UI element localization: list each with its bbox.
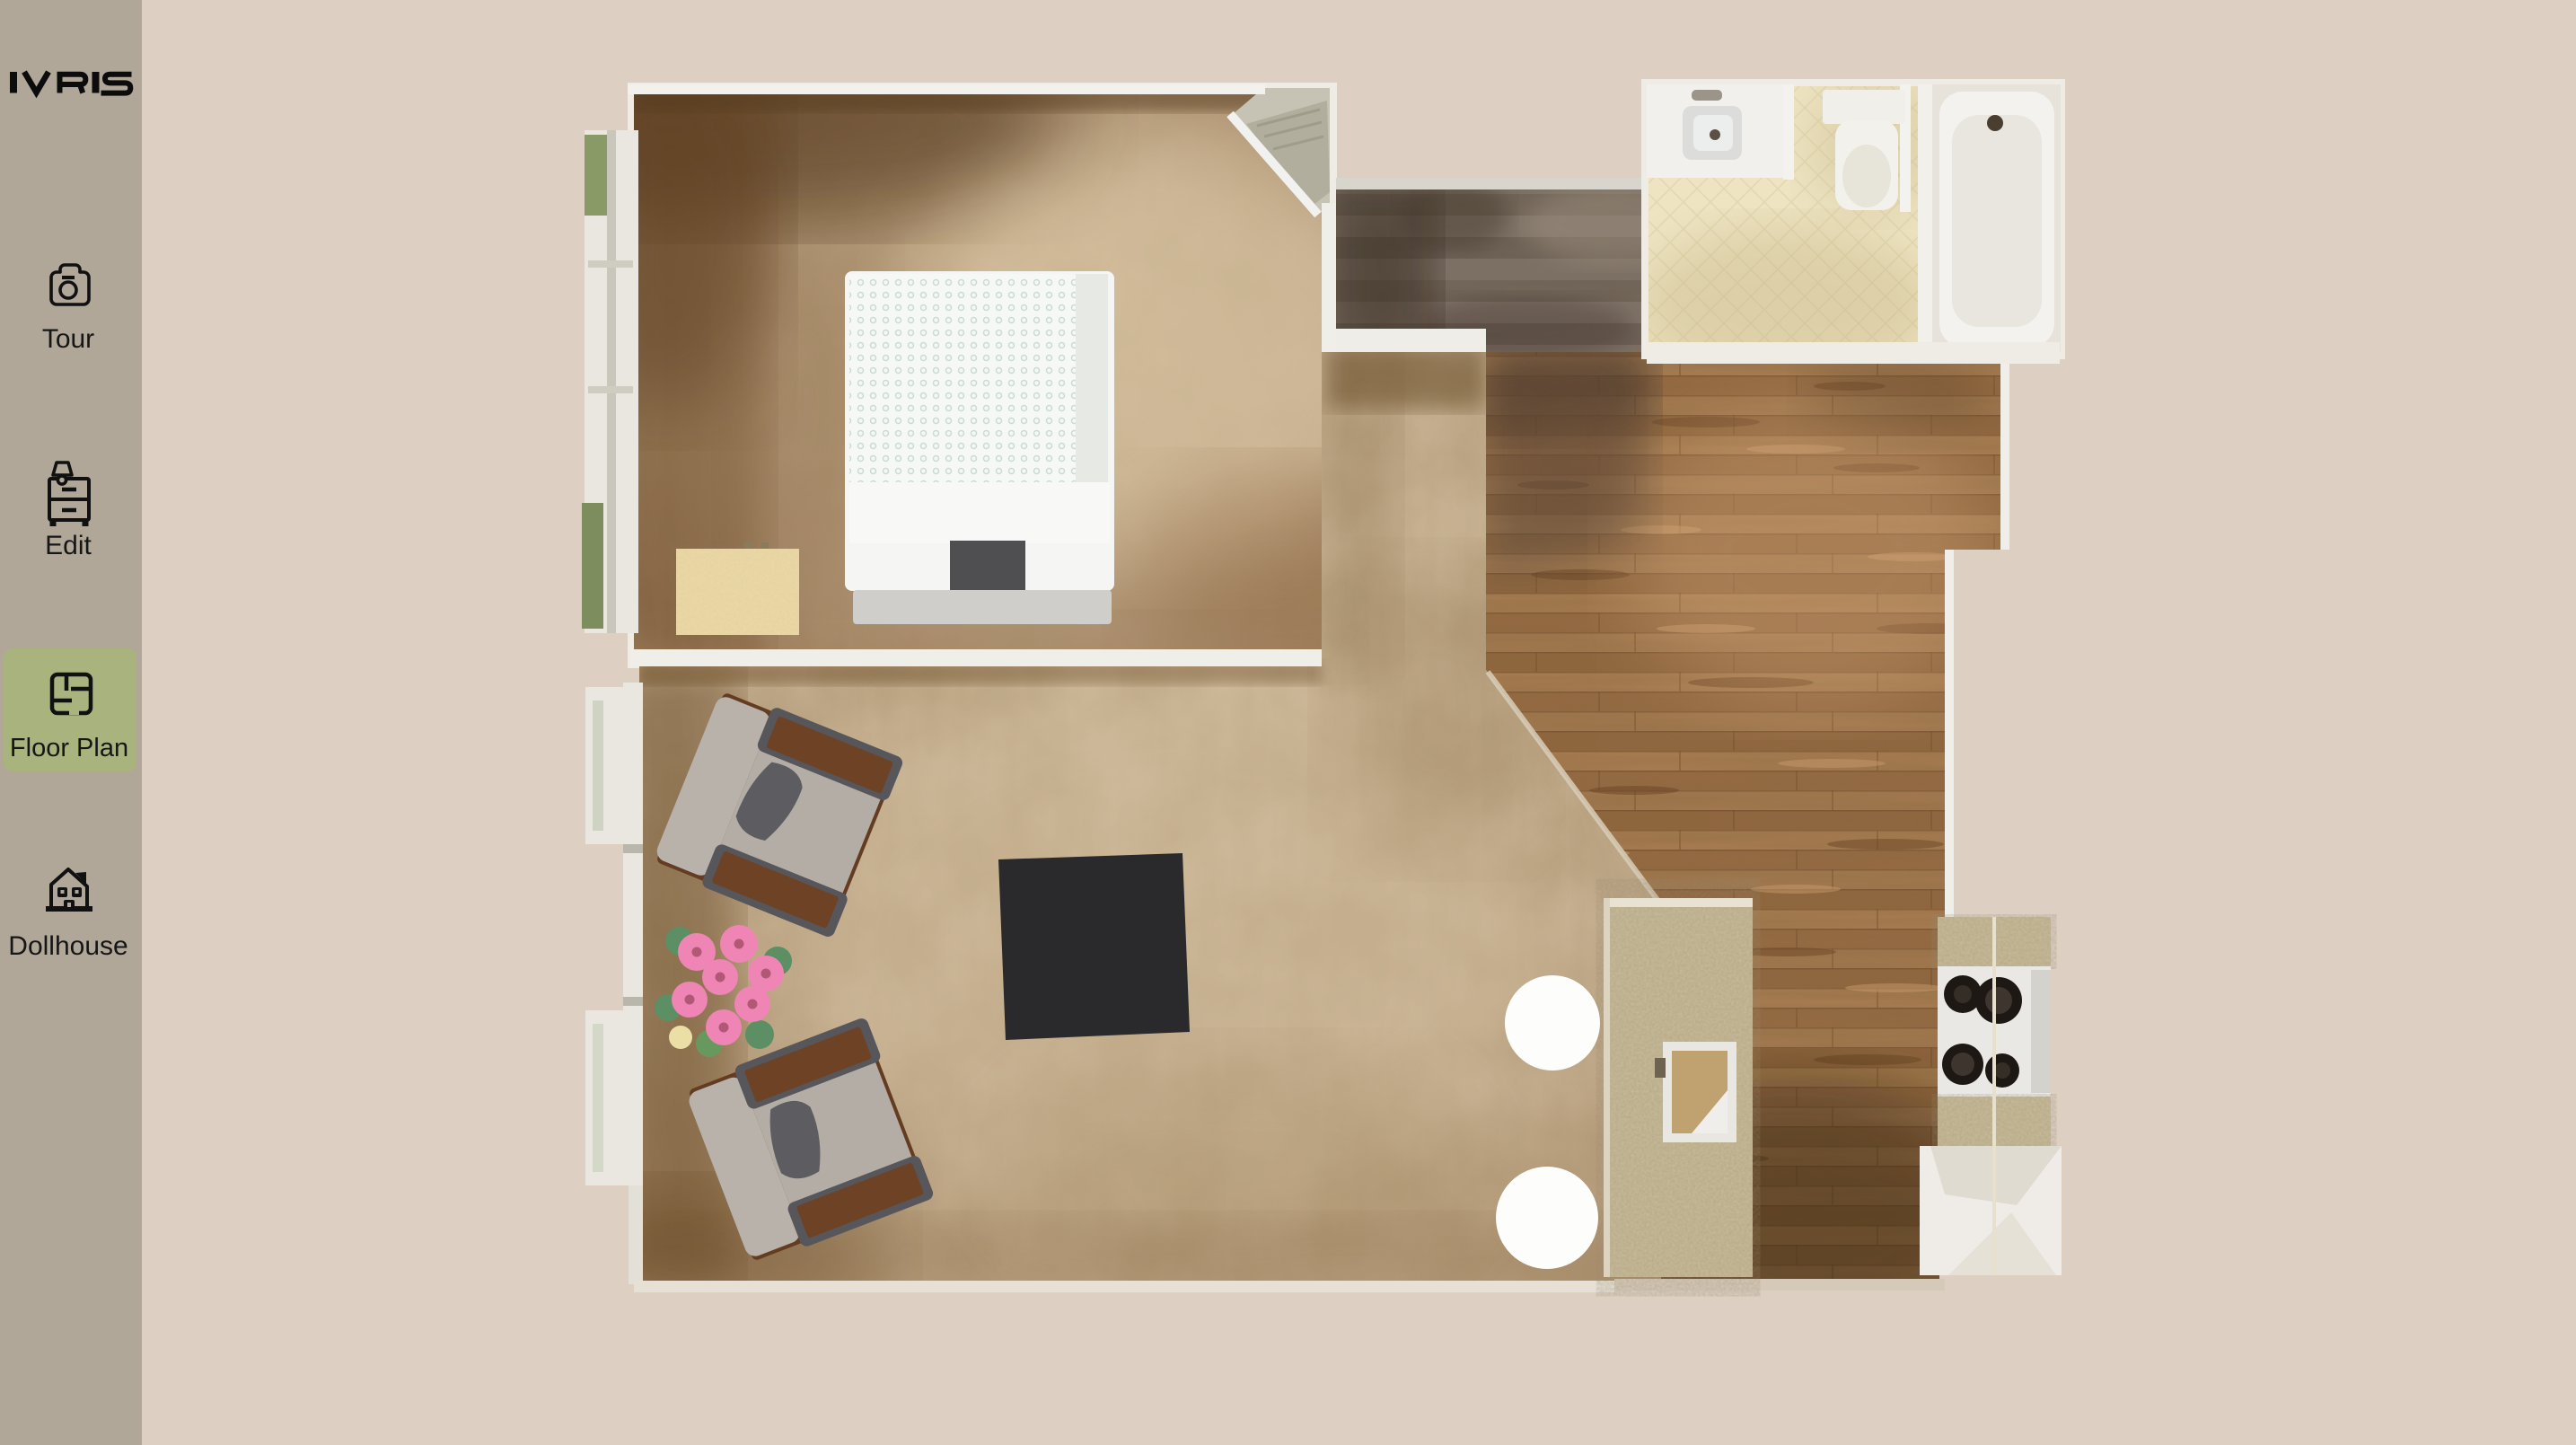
svg-text:Edit: Edit [45, 531, 92, 560]
svg-text:Floor Plan: Floor Plan [10, 734, 128, 762]
svg-text:Dollhouse: Dollhouse [8, 931, 127, 961]
svg-text:Tour: Tour [42, 324, 94, 354]
